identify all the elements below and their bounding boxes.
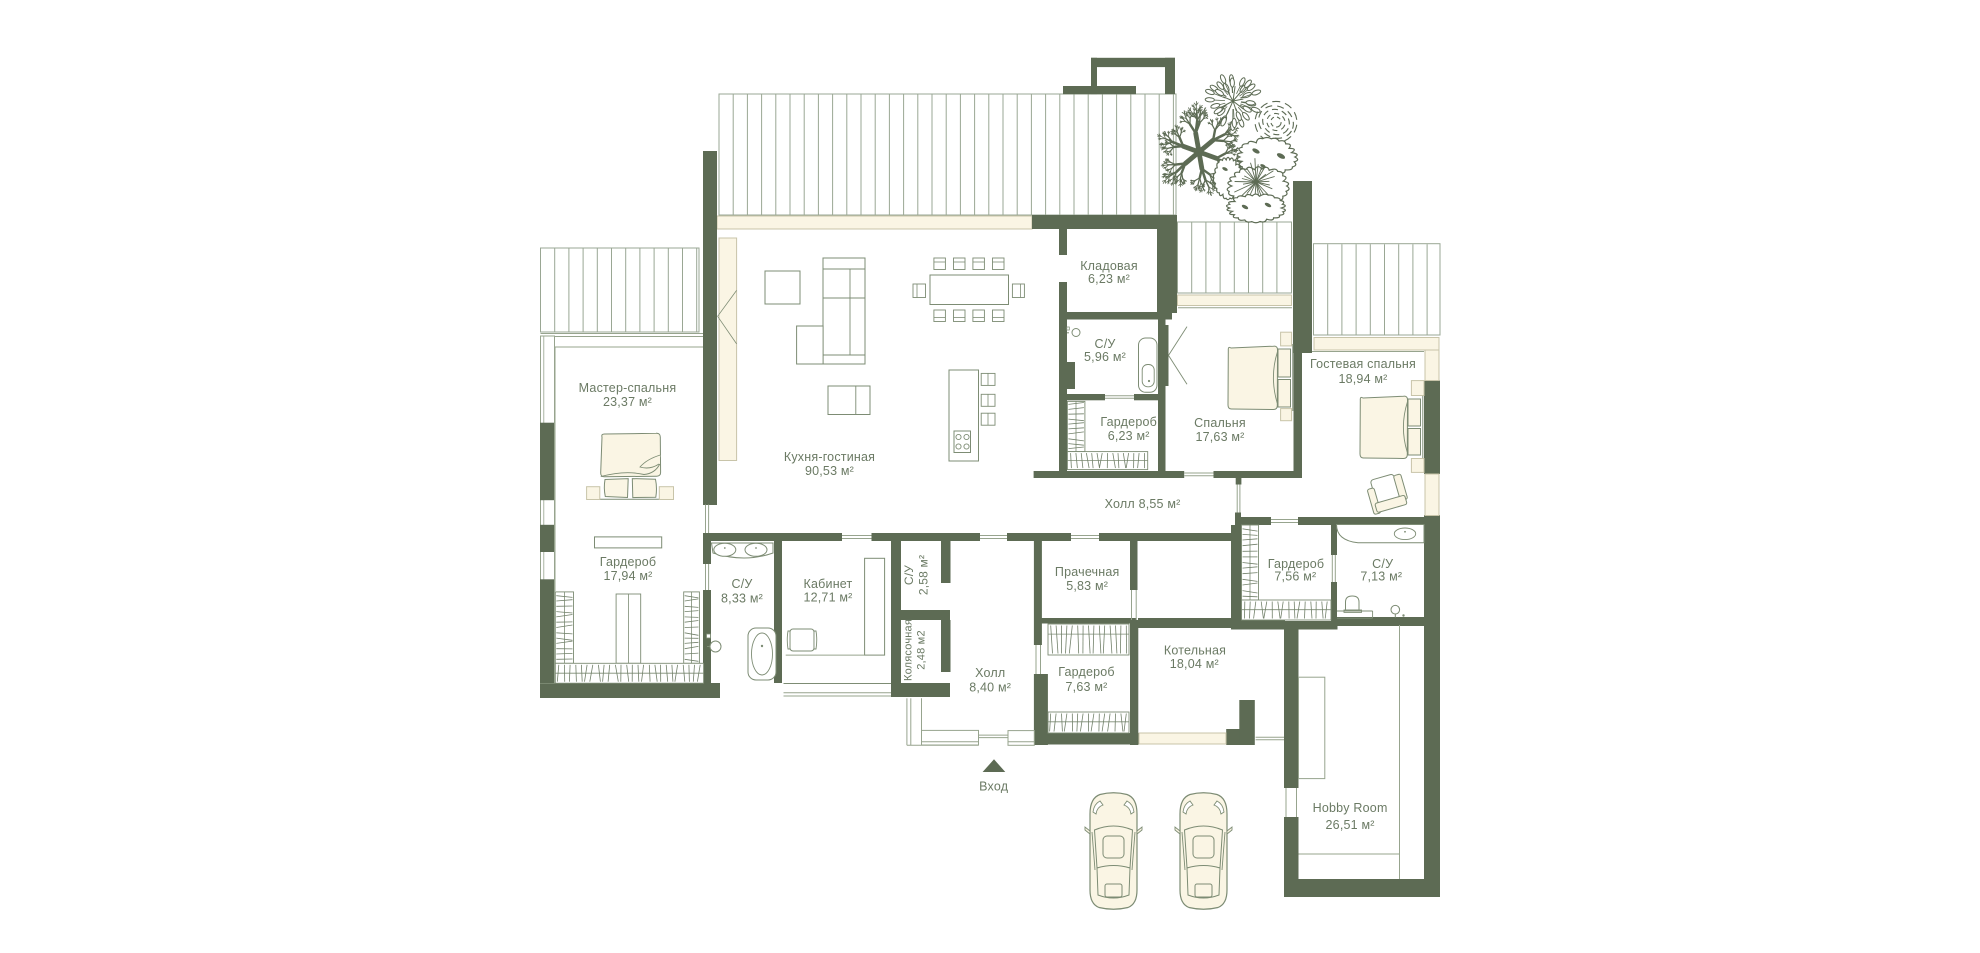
svg-text:С/У: С/У [902, 565, 916, 585]
svg-text:90,53 м²: 90,53 м² [805, 464, 854, 478]
svg-text:18,04 м²: 18,04 м² [1170, 657, 1219, 671]
svg-text:7,13 м²: 7,13 м² [1360, 570, 1402, 584]
svg-text:8,40 м²: 8,40 м² [969, 681, 1011, 695]
svg-text:Кухня-гостиная: Кухня-гостиная [784, 450, 875, 464]
svg-text:Гардероб: Гардероб [1058, 665, 1115, 679]
svg-text:С/У: С/У [1094, 337, 1115, 351]
svg-text:Гостевая спальня: Гостевая спальня [1310, 357, 1416, 371]
svg-text:Hobby Room: Hobby Room [1313, 801, 1388, 815]
svg-text:Холл 8,55 м²: Холл 8,55 м² [1105, 497, 1181, 511]
svg-text:Кладовая: Кладовая [1080, 259, 1138, 273]
svg-text:7,63 м²: 7,63 м² [1066, 680, 1108, 694]
svg-text:Гардероб: Гардероб [600, 555, 657, 569]
svg-text:5,83 м²: 5,83 м² [1066, 579, 1108, 593]
svg-text:Котельная: Котельная [1164, 644, 1226, 658]
svg-text:Мастер-спальня: Мастер-спальня [579, 381, 677, 395]
svg-text:17,94 м²: 17,94 м² [603, 569, 652, 583]
svg-text:5,96 м²: 5,96 м² [1084, 350, 1126, 364]
svg-text:Холл: Холл [975, 666, 1005, 680]
svg-text:Колясочная: Колясочная [903, 619, 915, 681]
svg-text:Спальня: Спальня [1194, 416, 1246, 430]
svg-text:23,37 м²: 23,37 м² [603, 395, 652, 409]
svg-text:Гардероб: Гардероб [1100, 415, 1157, 429]
svg-text:12,71 м²: 12,71 м² [803, 591, 852, 605]
svg-text:6,23 м²: 6,23 м² [1088, 272, 1130, 286]
svg-text:Прачечная: Прачечная [1055, 565, 1120, 579]
svg-text:18,94 м²: 18,94 м² [1338, 372, 1387, 386]
svg-text:6,23 м²: 6,23 м² [1108, 429, 1150, 443]
svg-text:26,51 м²: 26,51 м² [1326, 818, 1375, 832]
svg-text:2,48 м2: 2,48 м2 [916, 630, 928, 670]
svg-text:Кабинет: Кабинет [804, 577, 853, 591]
svg-text:Вход: Вход [979, 780, 1009, 794]
svg-text:С/У: С/У [731, 577, 752, 591]
svg-text:17,63 м²: 17,63 м² [1195, 430, 1244, 444]
svg-text:7,56 м²: 7,56 м² [1274, 570, 1316, 584]
svg-text:8,33 м²: 8,33 м² [721, 592, 763, 606]
svg-text:2,58 м²: 2,58 м² [917, 555, 931, 595]
